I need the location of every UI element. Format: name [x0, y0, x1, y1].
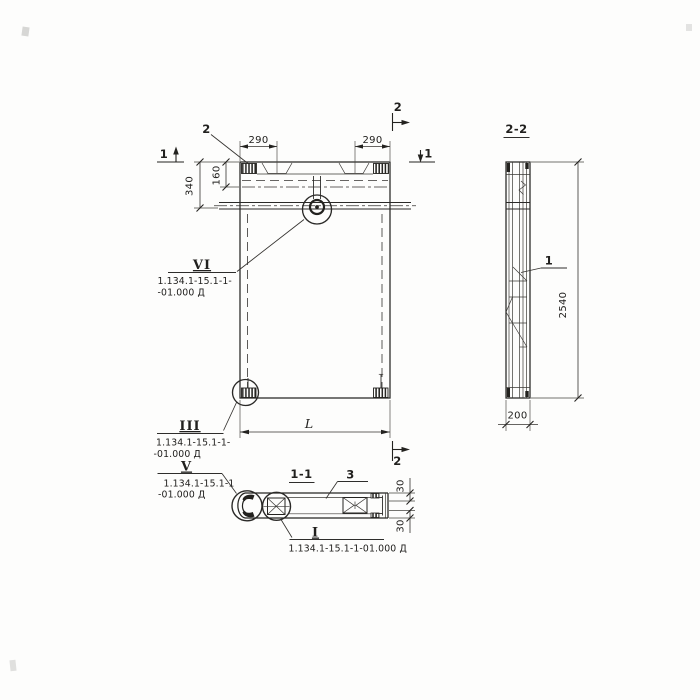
- dim-200-text: 200: [508, 411, 528, 422]
- detail-circle-v: [232, 491, 262, 521]
- dim-30-bottom-text: 30: [396, 519, 407, 532]
- dim-2540: 2540: [531, 159, 584, 402]
- detail-vi-line1: 1.134.1-15.1-1-: [158, 276, 232, 287]
- section-marker-2-bottom: 2: [393, 441, 411, 468]
- middle-void: [343, 498, 367, 514]
- panel-outline: [240, 162, 390, 398]
- detail-label-i: I 1.134.1-15.1-1-01.000 Д: [281, 520, 407, 555]
- side-view-title: 2-2: [504, 122, 530, 138]
- dim-2540-text: 2540: [558, 292, 569, 319]
- callout-1-label: 1: [545, 254, 554, 268]
- detail-v-line2: -01.000 Д: [158, 490, 205, 501]
- dim-160: 160: [212, 159, 240, 191]
- detail-v-roman: V: [180, 460, 192, 475]
- section-marker-1-left: 1: [157, 147, 184, 163]
- dim-30-top: 30: [389, 478, 415, 505]
- dim-30-top-text: 30: [396, 479, 407, 492]
- detail-vi-roman: VI: [192, 258, 211, 273]
- dim-200: 200: [498, 400, 538, 431]
- side-view-title-text: 2-2: [505, 122, 527, 136]
- joint-band: [214, 203, 416, 210]
- dim-30-bottom: 30: [389, 507, 415, 533]
- callout-3: 3: [326, 468, 368, 499]
- detail-iii-roman: III: [179, 419, 200, 434]
- detail-iii-line2: -01.000 Д: [154, 449, 201, 460]
- sec2-top-label: 2: [394, 100, 403, 114]
- strip-right-end: [371, 493, 386, 518]
- detail-label-v: V 1.134.1-15.1-1 -01.000 Д: [158, 460, 237, 501]
- dim-L-text: L: [304, 416, 313, 431]
- top-anchor-blocks: [242, 164, 389, 174]
- callout-1: 1: [521, 254, 567, 273]
- detail-v-line1: 1.134.1-15.1-1: [164, 479, 235, 490]
- detail-circle-i: [263, 492, 291, 520]
- detail-iii-line1: 1.134.1-15.1-1-: [156, 438, 230, 449]
- dim-160-text: 160: [212, 166, 223, 186]
- detail-label-iii: III 1.134.1-15.1-1- -01.000 Д: [154, 419, 231, 460]
- sec1-left-label: 1: [160, 147, 169, 161]
- callout-2: 2: [202, 122, 248, 164]
- side-view-2-2: 2-2: [498, 122, 584, 431]
- section-view-1-1: 1-1: [158, 460, 416, 555]
- detail-vi-line2: -01.000 Д: [158, 288, 205, 299]
- hidden-lines: [242, 181, 388, 394]
- lifting-loop-detail: [237, 176, 332, 272]
- detail-label-vi: VI 1.134.1-15.1-1- -01.000 Д: [158, 258, 237, 299]
- strip-body: [238, 493, 388, 518]
- technical-drawing: 1 1 2 2: [0, 0, 700, 700]
- sec2-bottom-label: 2: [393, 454, 402, 468]
- blueprint-page: 1 1 2 2: [0, 0, 700, 700]
- dim-290-left-text: 290: [249, 135, 269, 146]
- front-view: 1 1 2 2: [154, 100, 436, 468]
- section-title-text: 1-1: [290, 467, 312, 481]
- callout-2-label: 2: [202, 122, 211, 136]
- top-recesses: [262, 163, 369, 174]
- section-marker-2-top: 2: [393, 100, 411, 131]
- detail-i-roman: I: [312, 526, 319, 541]
- section-marker-1-right: 1: [409, 147, 435, 163]
- sec1-right-label: 1: [424, 147, 433, 161]
- dim-290-right-text: 290: [363, 135, 383, 146]
- detail-i-line1: 1.134.1-15.1-1-01.000 Д: [289, 544, 407, 555]
- dim-340-text: 340: [185, 176, 196, 196]
- dim-L: L: [240, 400, 390, 438]
- section-title: 1-1: [289, 467, 315, 483]
- callout-3-label: 3: [346, 468, 355, 482]
